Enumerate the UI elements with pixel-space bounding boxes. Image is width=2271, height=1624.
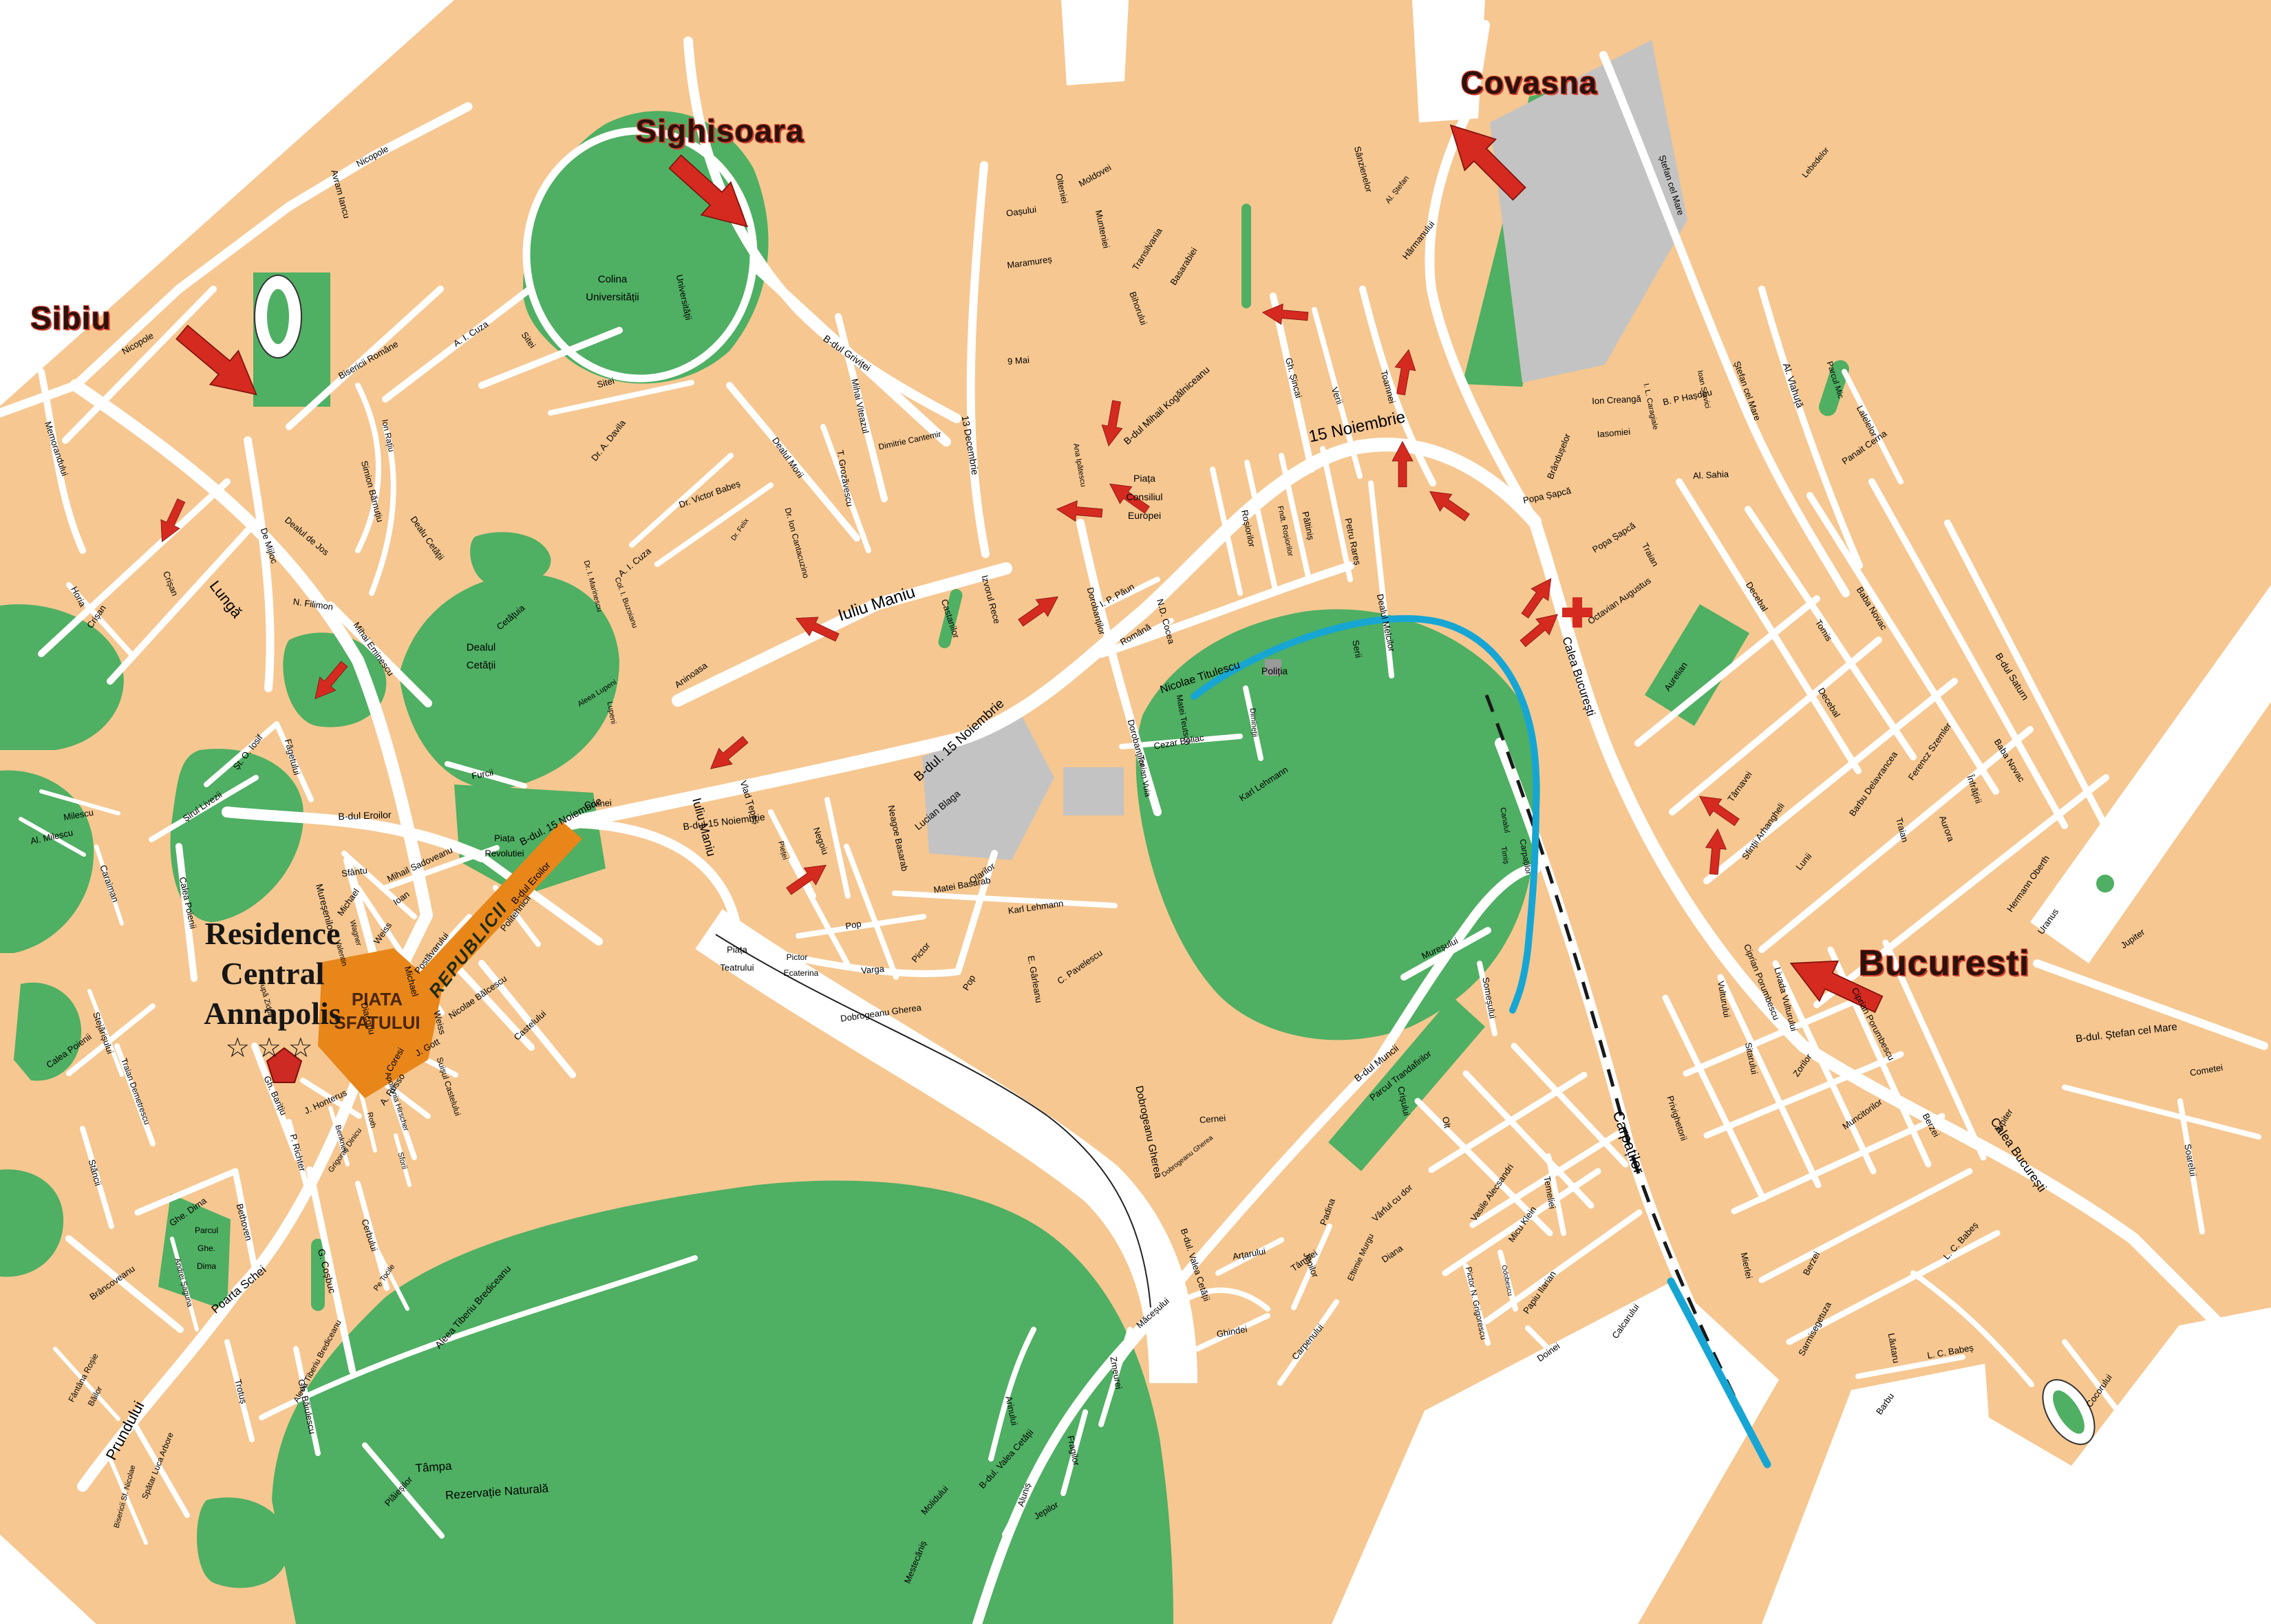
- city-map-canvas: [0, 0, 2271, 1624]
- brasov-map-page: { "title": "Brasov city street map", "co…: [0, 0, 2271, 1624]
- police-station-marker: [1265, 659, 1281, 676]
